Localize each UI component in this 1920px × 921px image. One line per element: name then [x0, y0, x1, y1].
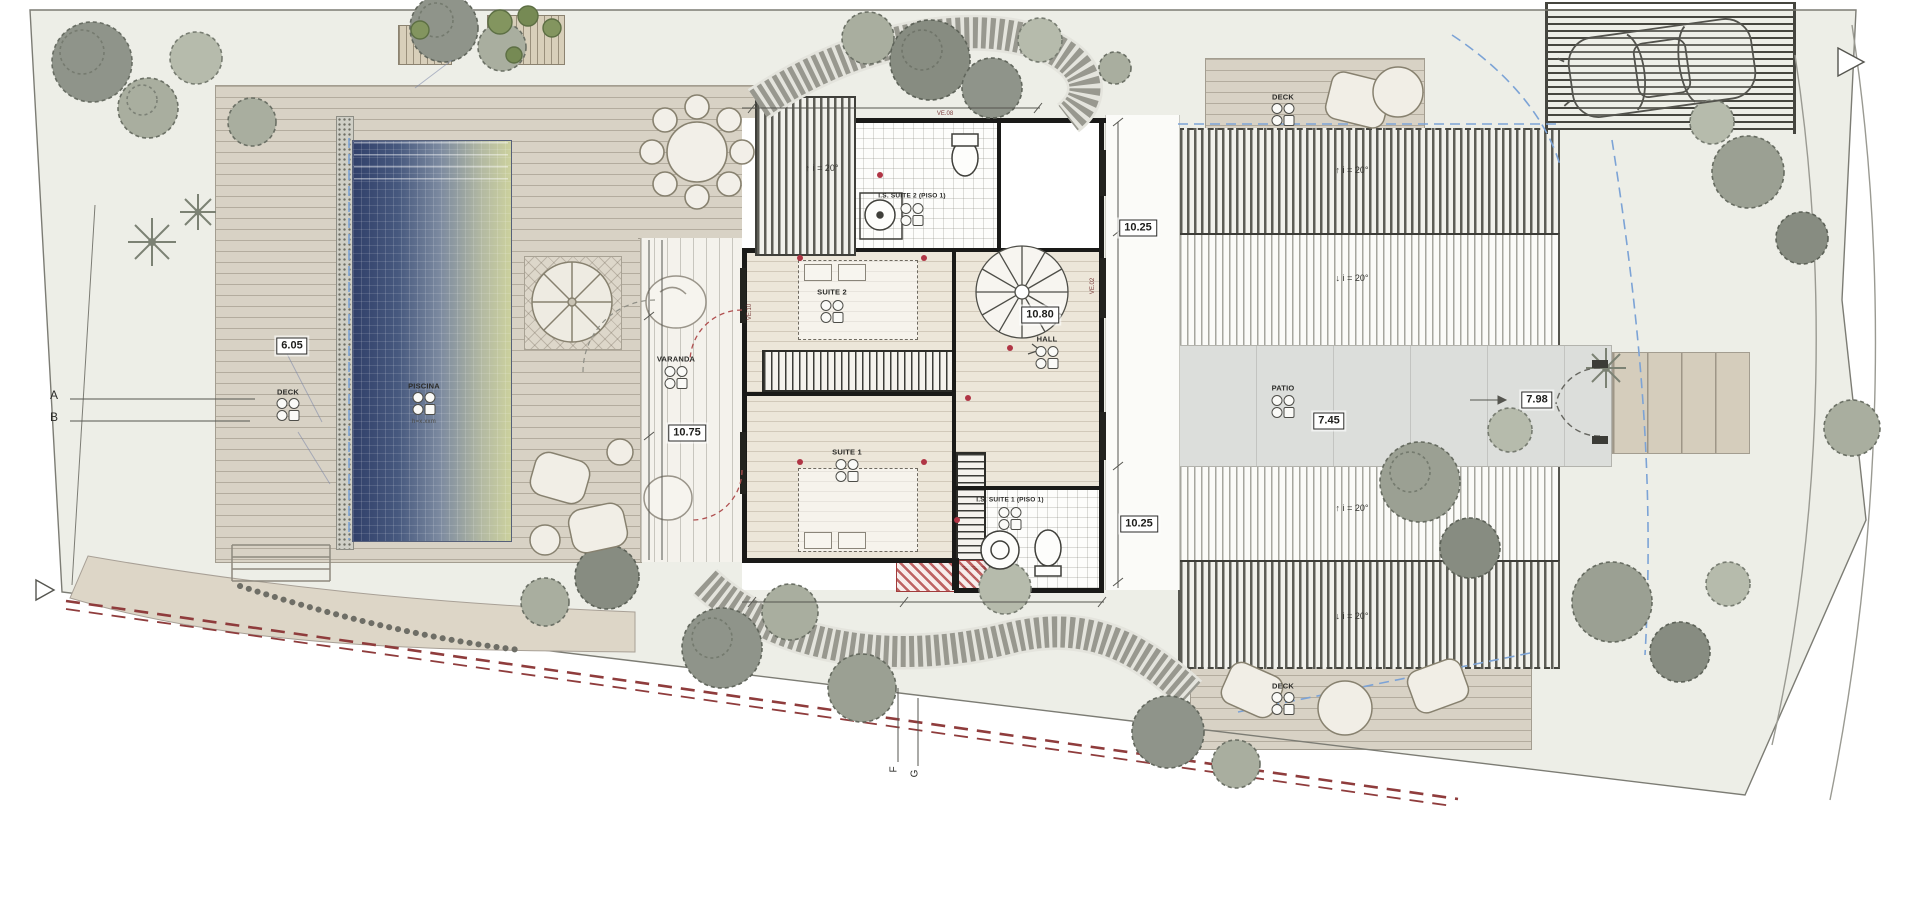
label-deck-bottom-right: DECK	[1272, 682, 1294, 691]
palm-tree	[180, 194, 216, 230]
dim-hall: 10.80	[1021, 307, 1059, 324]
bathroom-fixtures	[860, 134, 1061, 576]
tree	[1712, 136, 1784, 208]
varanda-data-tags	[665, 366, 688, 389]
lounge-furniture	[527, 439, 633, 555]
tree	[170, 32, 222, 84]
dim-walkway-top: 10.25	[1119, 220, 1157, 237]
patio-data-tags	[1272, 395, 1295, 418]
tree	[575, 545, 639, 609]
tree	[979, 562, 1031, 614]
label-patio: PATIO	[1272, 384, 1295, 393]
tree	[842, 12, 894, 64]
tree	[1572, 562, 1652, 642]
tree	[228, 98, 276, 146]
tree	[1488, 408, 1532, 452]
dining-table-set	[640, 95, 754, 209]
section-marker-f: F	[889, 766, 900, 772]
slope-label-roofB-lower: ↓ i = 20°	[1336, 611, 1369, 621]
deck-br-data-tags	[1272, 692, 1295, 715]
pool-depth-note: h=x.xxm	[412, 419, 436, 425]
is-suite2-data-tags	[901, 203, 924, 226]
deck-left-data-tags	[277, 398, 300, 421]
dim-pool-deck: 6.05	[276, 338, 307, 355]
dim-varanda: 10.75	[668, 425, 706, 442]
suite2-data-tags	[821, 300, 844, 323]
label-piscina: PISCINA	[408, 382, 440, 391]
suite1-data-tags	[836, 459, 859, 482]
slope-arrow-icon: ↓	[1336, 273, 1341, 283]
tree	[1132, 696, 1204, 768]
tree	[762, 584, 818, 640]
tree	[1690, 100, 1734, 144]
label-deck-left: DECK	[277, 388, 299, 397]
linework-overlay	[0, 0, 1920, 921]
slope-label-roofA-upper: ↑ i = 20°	[1336, 165, 1369, 175]
slope-arrow-icon: ↑	[1336, 503, 1341, 513]
tree	[1380, 442, 1460, 522]
trees	[52, 0, 1880, 788]
tree	[890, 20, 970, 100]
slope-label-roofA-lower: ↓ i = 20°	[1336, 273, 1369, 283]
label-suite2: SUITE 2	[817, 288, 847, 297]
tree	[1706, 562, 1750, 606]
umbrella	[532, 262, 612, 342]
tree	[962, 58, 1022, 118]
slope-label-roofB-upper: ↑ i = 20°	[1336, 503, 1369, 513]
deck-tr-furniture	[1323, 67, 1423, 131]
window-code-ve02: VE.02	[1090, 278, 1096, 294]
tree	[1440, 518, 1500, 578]
dim-patio: 7.45	[1313, 413, 1344, 430]
car-top-view	[1555, 16, 1758, 122]
label-is-suite2: I.S. SUITE 2 (PISO 1)	[878, 193, 945, 200]
tree	[52, 22, 132, 102]
tree	[1650, 622, 1710, 682]
label-is-suite1: I.S. SUITE 1 (PISO 1)	[976, 497, 1043, 504]
slope-arrow-icon: ↑	[1336, 165, 1341, 175]
tree	[1099, 52, 1131, 84]
window-code-ve08: VE.08	[937, 111, 953, 117]
tree	[521, 578, 569, 626]
tree	[118, 78, 178, 138]
tree	[1824, 400, 1880, 456]
site-plan-canvas: PISCINA h=x.xxm DECK VARANDA SUITE 2 SUI…	[0, 0, 1920, 921]
slope-arrow-icon: ↑	[806, 163, 811, 173]
hall-data-tags	[1036, 346, 1059, 369]
palm-tree	[128, 218, 176, 266]
section-marker-g: G	[909, 770, 920, 778]
section-marker-a: A	[50, 388, 58, 402]
dimension-chains	[70, 103, 1506, 766]
slope-arrow-icon: ↓	[1336, 611, 1341, 621]
terrace-steps	[232, 545, 330, 581]
tree	[1212, 740, 1260, 788]
is-suite1-data-tags	[999, 507, 1022, 530]
label-hall: HALL	[1037, 335, 1058, 344]
triangle-markers	[36, 48, 1864, 600]
deck-br-furniture	[1217, 656, 1471, 735]
deck-tr-data-tags	[1272, 103, 1295, 126]
tree	[828, 654, 896, 722]
section-marker-b: B	[50, 410, 58, 424]
piscina-data-tags	[413, 392, 436, 415]
dim-walkway-bottom: 10.25	[1120, 516, 1158, 533]
slope-label-porch: ↑ i = 20°	[806, 163, 839, 173]
property-boundary	[30, 10, 1866, 795]
window-code-ve10: VE.10	[747, 304, 753, 320]
tree	[1018, 18, 1062, 62]
tree	[1776, 212, 1828, 264]
label-varanda: VARANDA	[657, 355, 695, 364]
tree	[682, 608, 762, 688]
label-deck-top-right: DECK	[1272, 93, 1294, 102]
label-suite1: SUITE 1	[832, 448, 862, 457]
dim-entry: 7.98	[1521, 392, 1552, 409]
